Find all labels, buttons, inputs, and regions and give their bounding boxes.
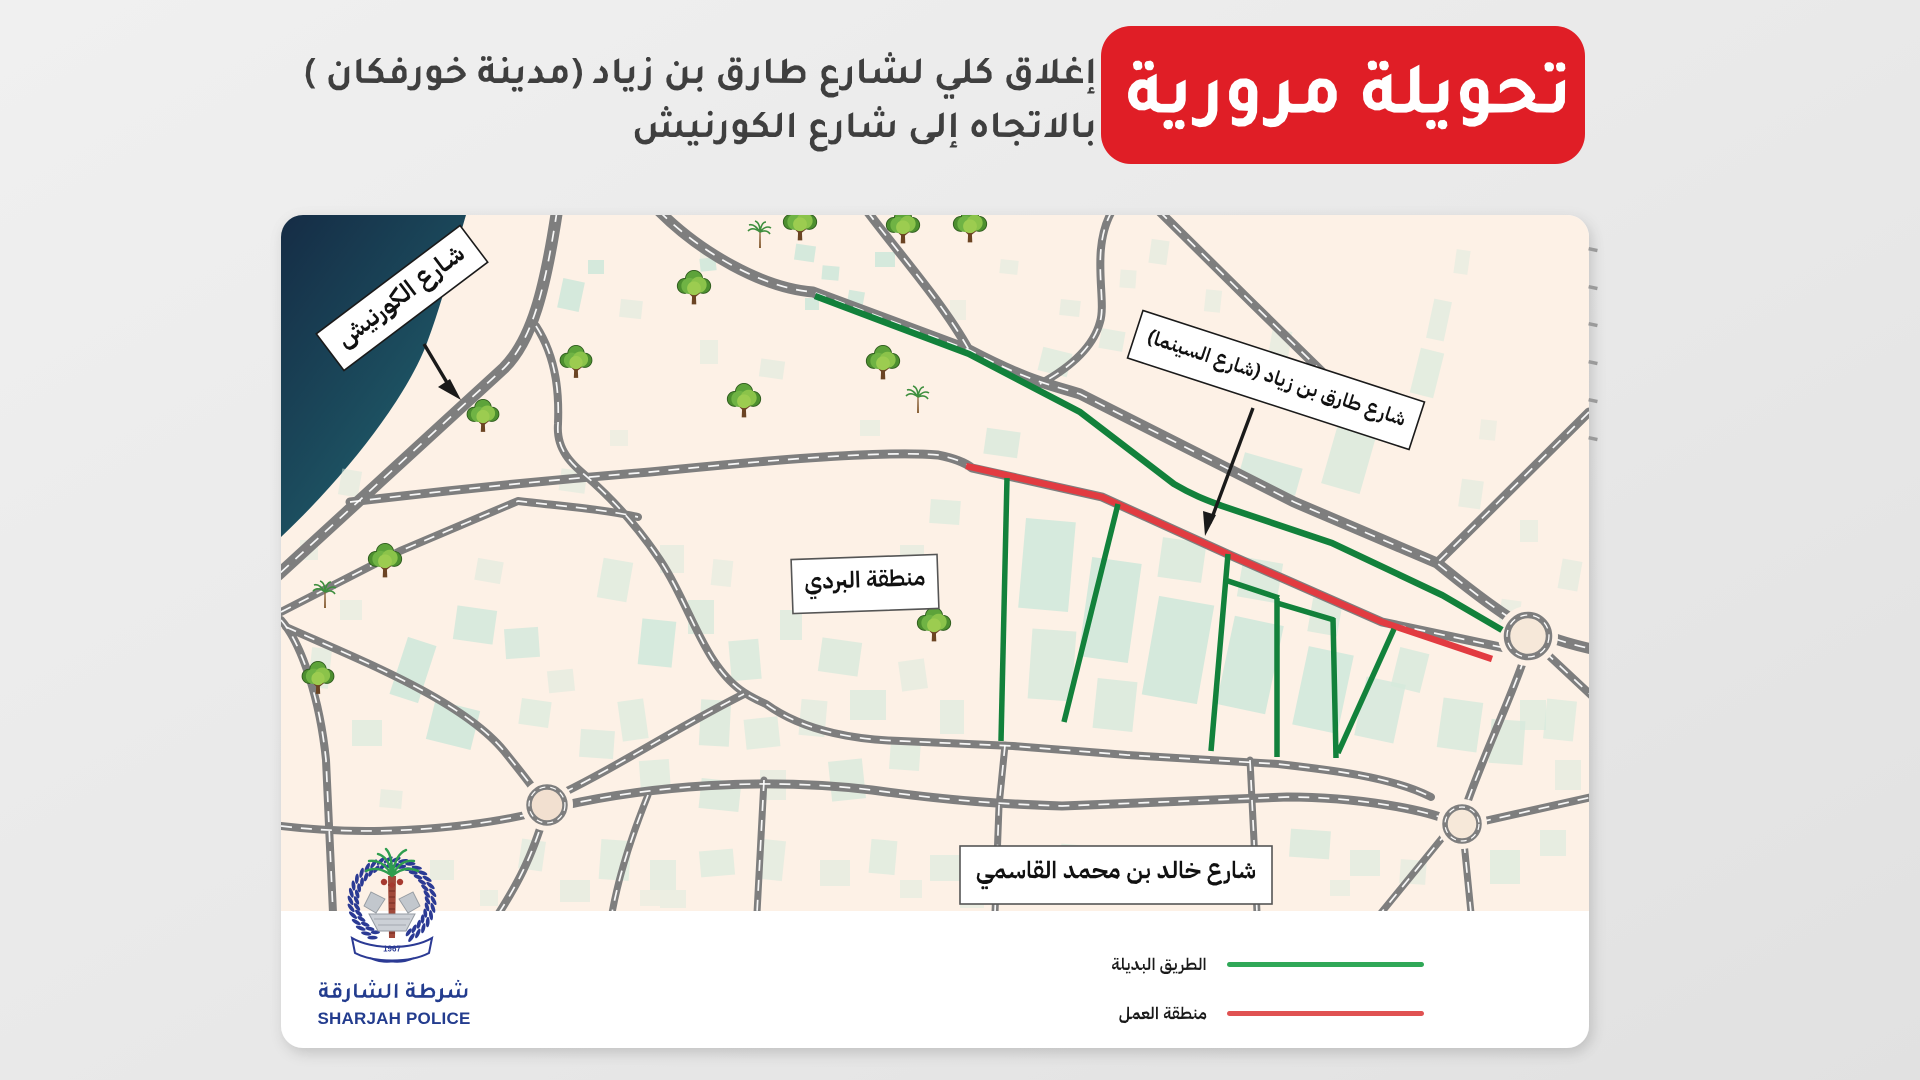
svg-text:SHARJAH POLICE: SHARJAH POLICE bbox=[318, 1009, 471, 1028]
svg-text:1967: 1967 bbox=[383, 945, 401, 954]
